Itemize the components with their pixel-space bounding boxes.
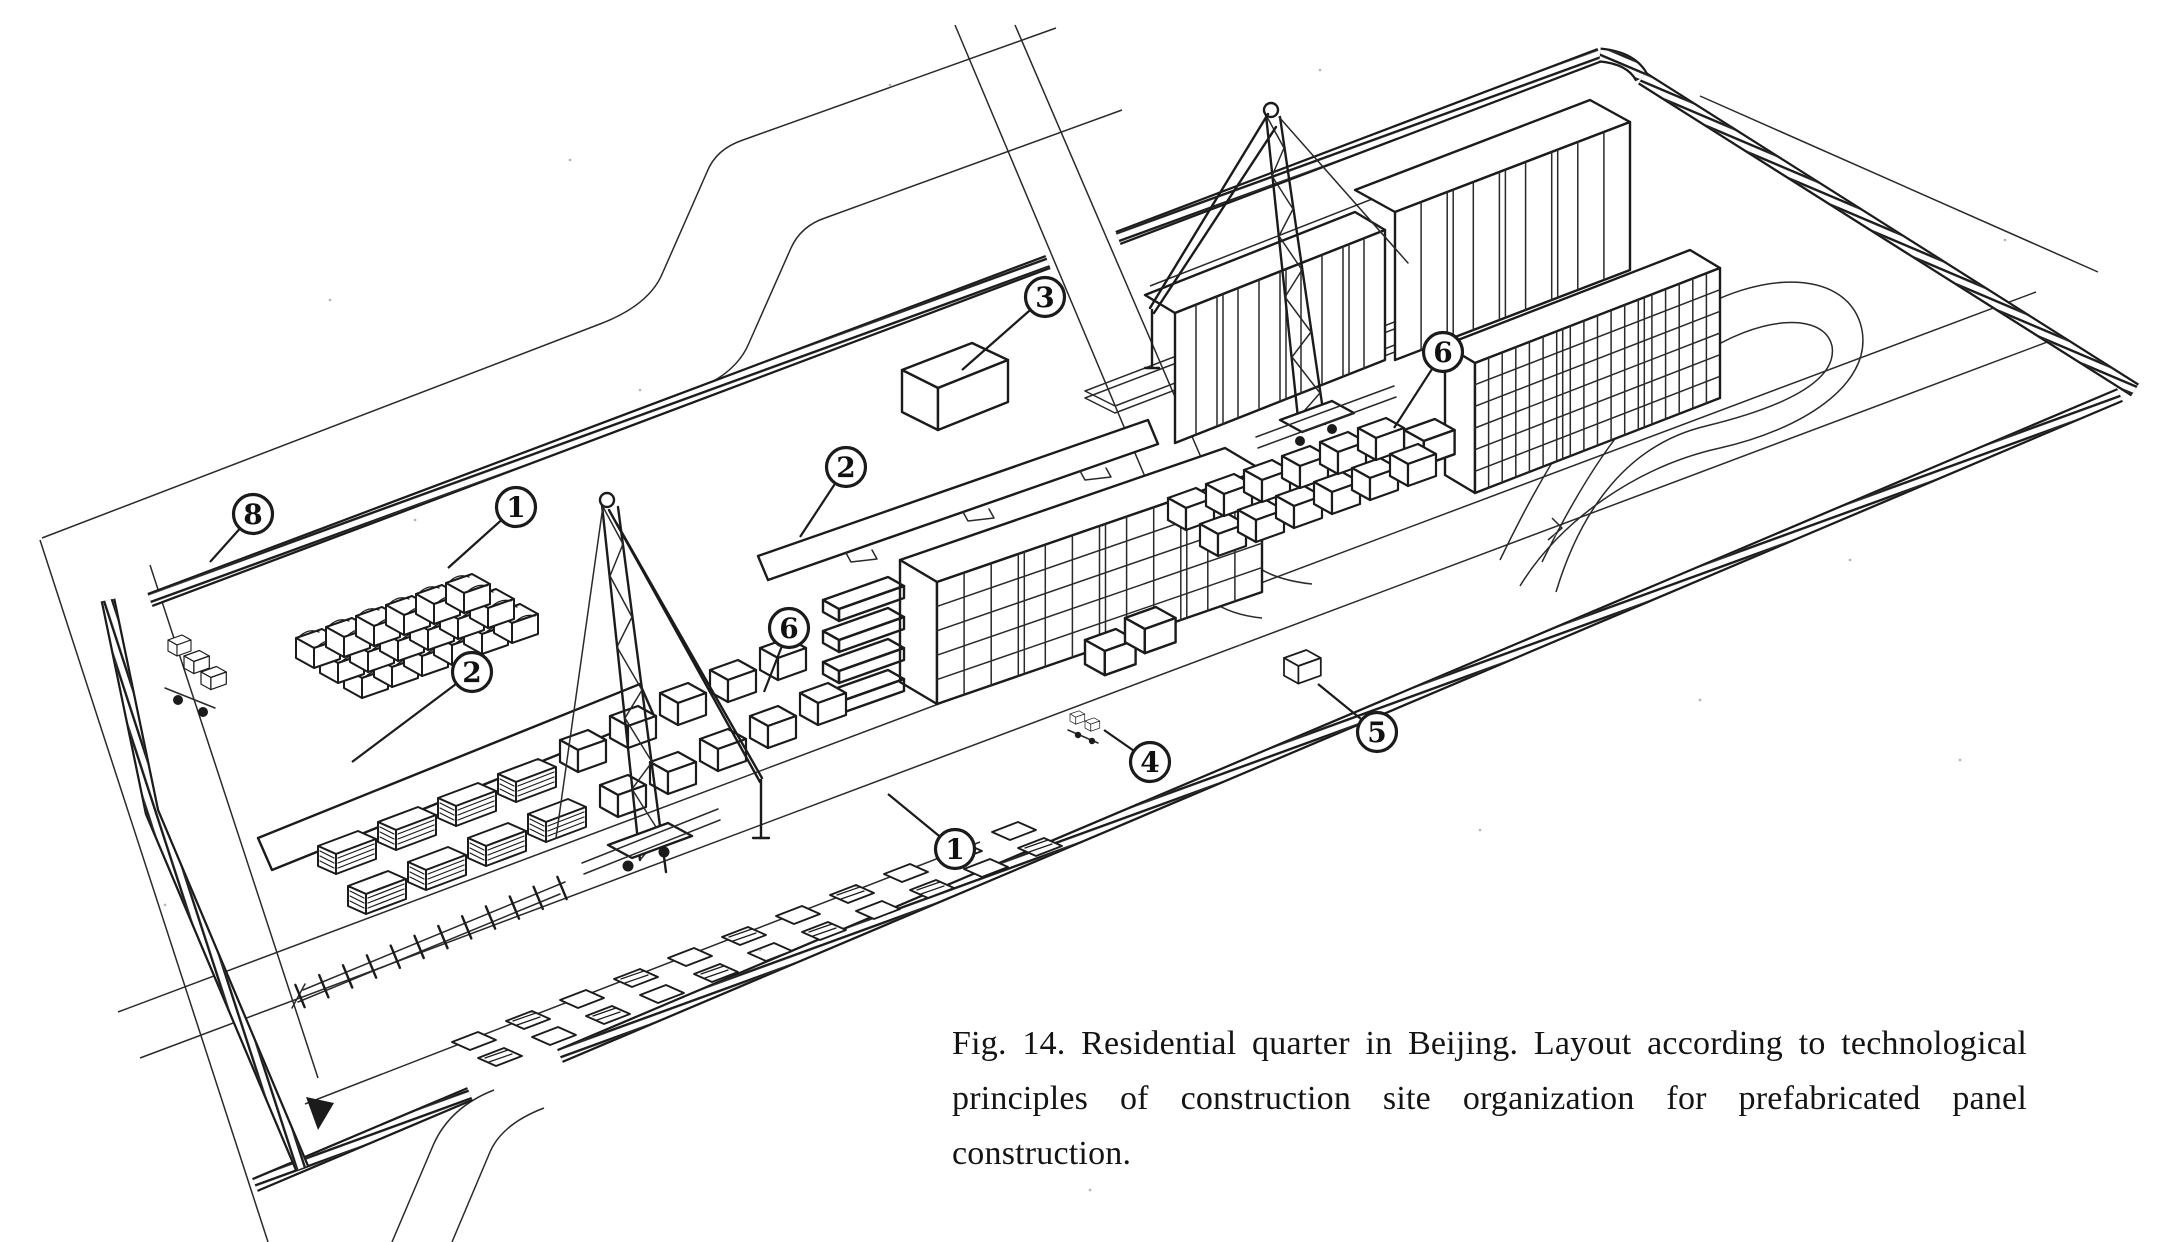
scanned-figure-page: 8126236451 Fig. 14. Residential quarter … (0, 0, 2163, 1242)
callout-1: 1 (888, 794, 975, 869)
plot-boundary-lines (42, 28, 2098, 562)
callout-number: 1 (945, 833, 964, 866)
callout-number: 4 (1140, 746, 1159, 779)
callout-number: 5 (1367, 716, 1386, 749)
callout-number: 1 (506, 491, 525, 524)
callout-number: 6 (1433, 336, 1452, 369)
callout-number: 3 (1035, 281, 1054, 314)
callout-number: 2 (462, 656, 481, 689)
west-street-edge (40, 540, 268, 1242)
crane-backstay (556, 506, 603, 838)
panel-stack-yard (296, 574, 538, 698)
utility-kiosk (1284, 650, 1321, 684)
building-under-construction-rear (1145, 212, 1385, 443)
site-office (902, 343, 1008, 430)
callout-1: 1 (448, 488, 536, 569)
site-objects (165, 100, 1720, 1130)
callout-number: 8 (243, 498, 262, 531)
railway-spur (292, 877, 567, 1008)
entrance-road (452, 1108, 544, 1242)
delivery-truck-right (1068, 711, 1100, 744)
figure-caption: Fig. 14. Residential quarter in Beijing.… (952, 1016, 2027, 1181)
callout-4: 4 (1104, 730, 1170, 782)
site-entrance-arrow (306, 1097, 334, 1130)
callout-number: 6 (779, 612, 798, 645)
callout-number: 2 (836, 451, 855, 484)
